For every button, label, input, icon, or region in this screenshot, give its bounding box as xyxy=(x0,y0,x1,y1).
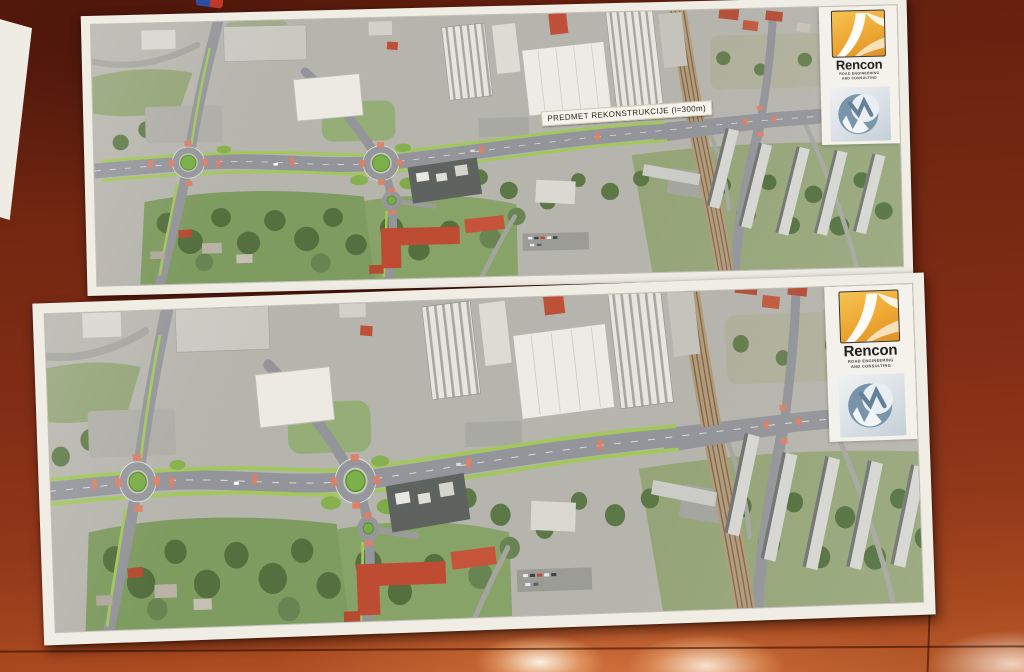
table-seam-horizontal xyxy=(0,645,1024,652)
pen-cap xyxy=(195,0,223,9)
logo-block: Rencon ROAD ENGINEERING AND CONSULTING xyxy=(819,5,900,145)
rencon-logo-icon xyxy=(838,289,900,343)
map-print-bottom: Rencon ROAD ENGINEERING AND CONSULTING xyxy=(32,273,935,646)
photo-scene: PREDMET REKONSTRUKCIJE (l=300m) Rencon R… xyxy=(0,0,1024,672)
company-tagline: ROAD ENGINEERING AND CONSULTING xyxy=(819,71,900,81)
aerial-map-graphic xyxy=(91,5,903,286)
aerial-map-bottom: Rencon ROAD ENGINEERING AND CONSULTING xyxy=(45,284,924,632)
logo-block: Rencon ROAD ENGINEERING AND CONSULTING xyxy=(824,284,917,442)
municipal-emblem-icon xyxy=(838,373,906,437)
aerial-map-top: PREDMET REKONSTRUKCIJE (l=300m) Rencon R… xyxy=(91,5,903,286)
stray-paper-corner xyxy=(0,18,32,220)
map-print-top: PREDMET REKONSTRUKCIJE (l=300m) Rencon R… xyxy=(81,0,914,296)
municipal-emblem-icon xyxy=(830,86,891,141)
company-name: Rencon xyxy=(824,57,894,72)
aerial-map-graphic xyxy=(45,284,924,632)
rencon-logo-icon xyxy=(831,9,886,57)
